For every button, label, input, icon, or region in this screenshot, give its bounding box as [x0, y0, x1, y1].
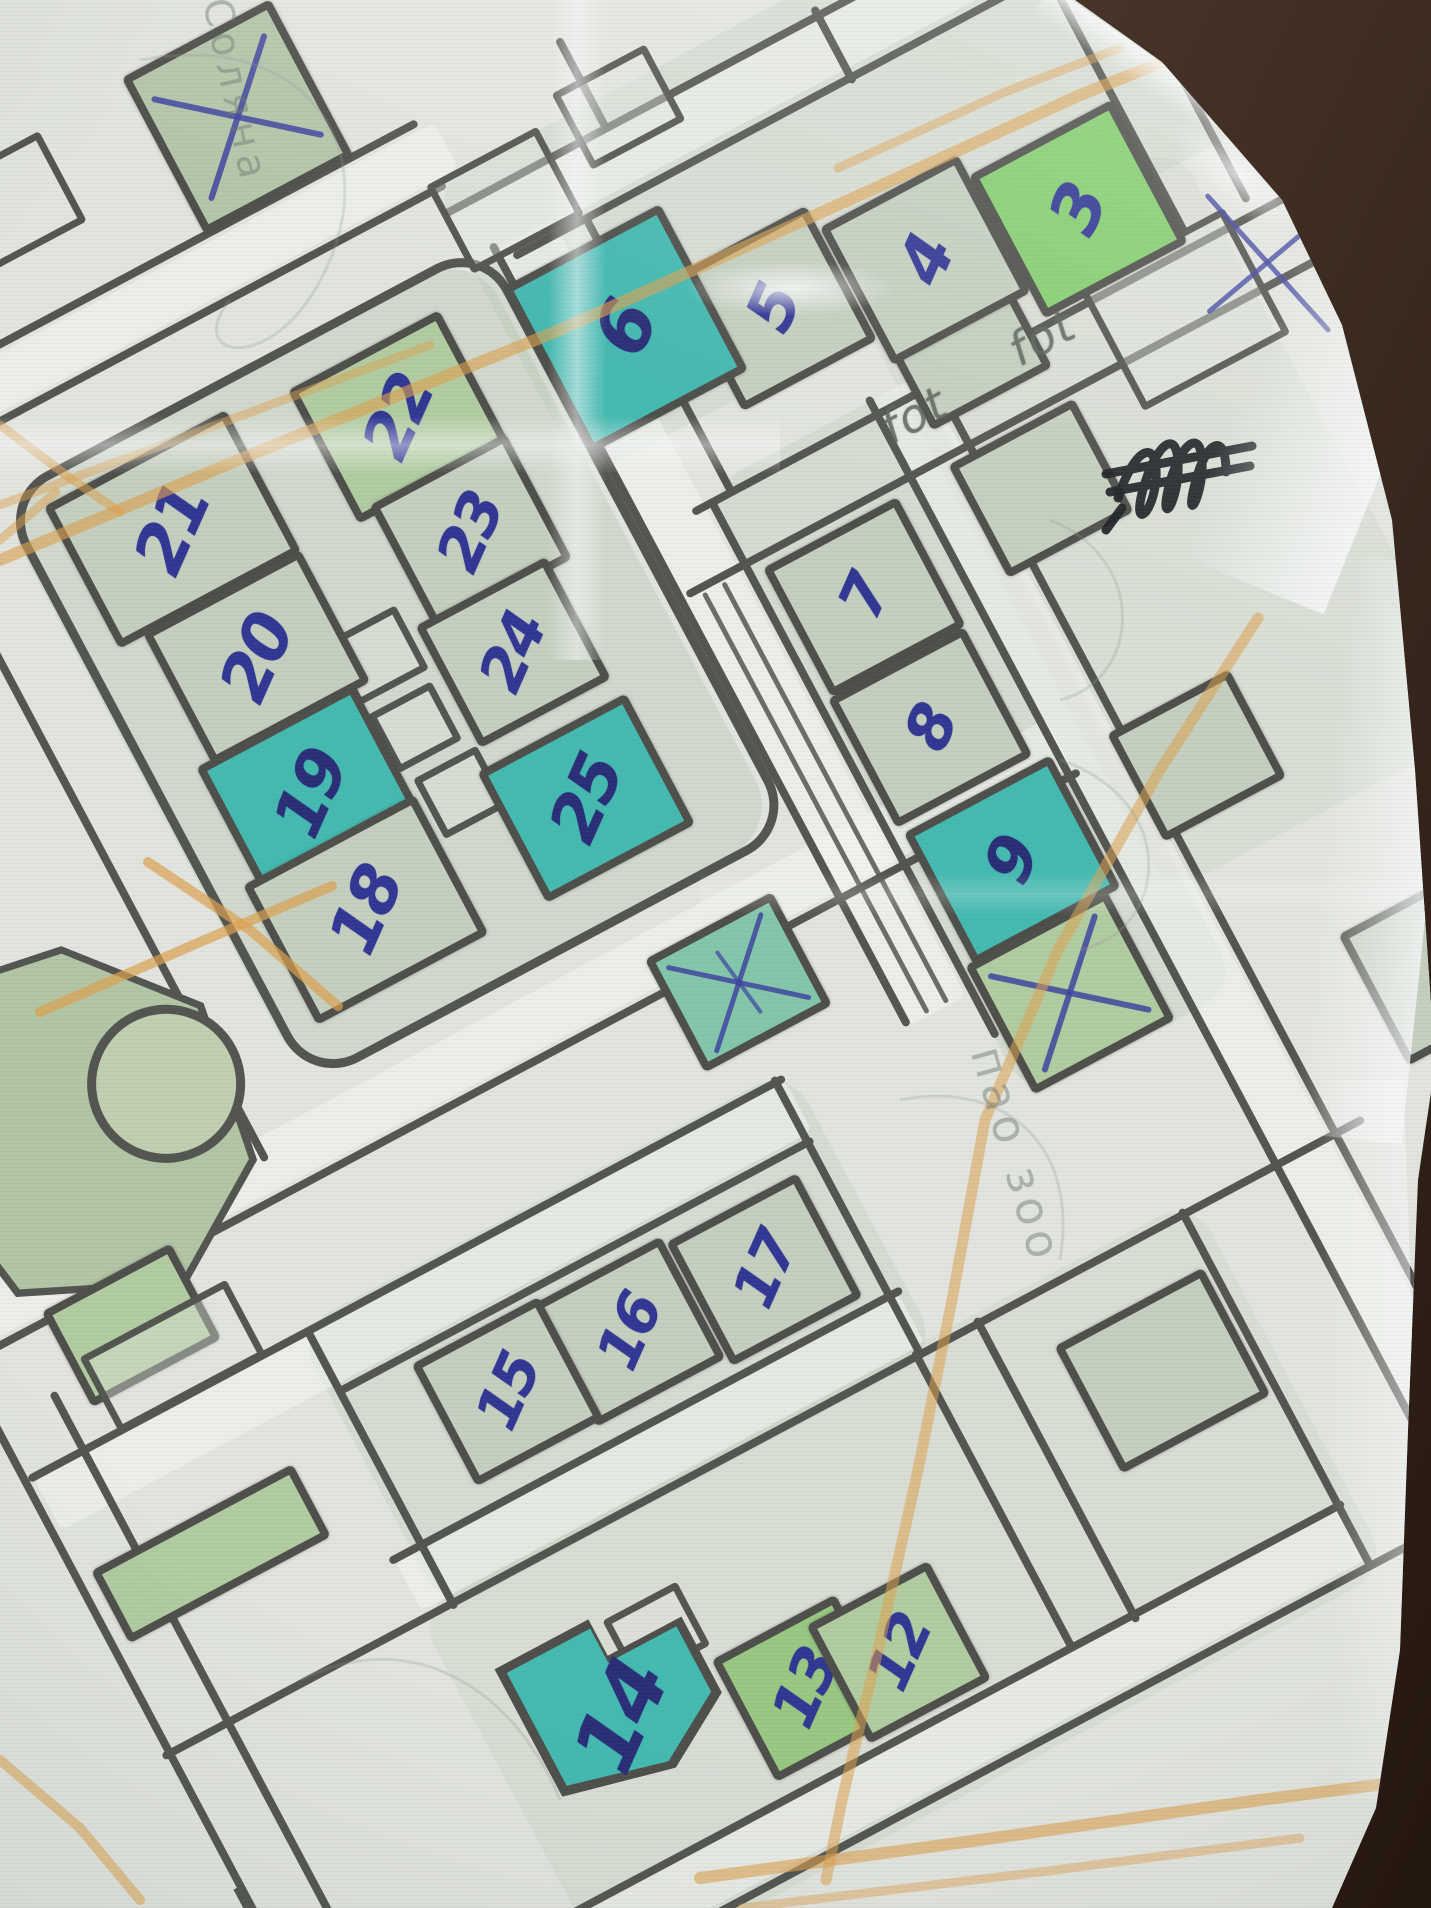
paper-sheet: 21 22 23 20 24 19 25 18 3 4 5 6 7 8 9 17…	[0, 0, 1431, 1908]
marker-scribble	[1106, 443, 1252, 530]
hand-annotations: fot fot Соляна пао зоо	[0, 0, 1431, 1908]
paper-x-mark	[1168, 176, 1361, 353]
map-photo: 21 22 23 20 24 19 25 18 3 4 5 6 7 8 9 17…	[0, 0, 1431, 1908]
x-stroke	[1206, 214, 1324, 314]
pencil-contour-lines	[140, 55, 1149, 1800]
